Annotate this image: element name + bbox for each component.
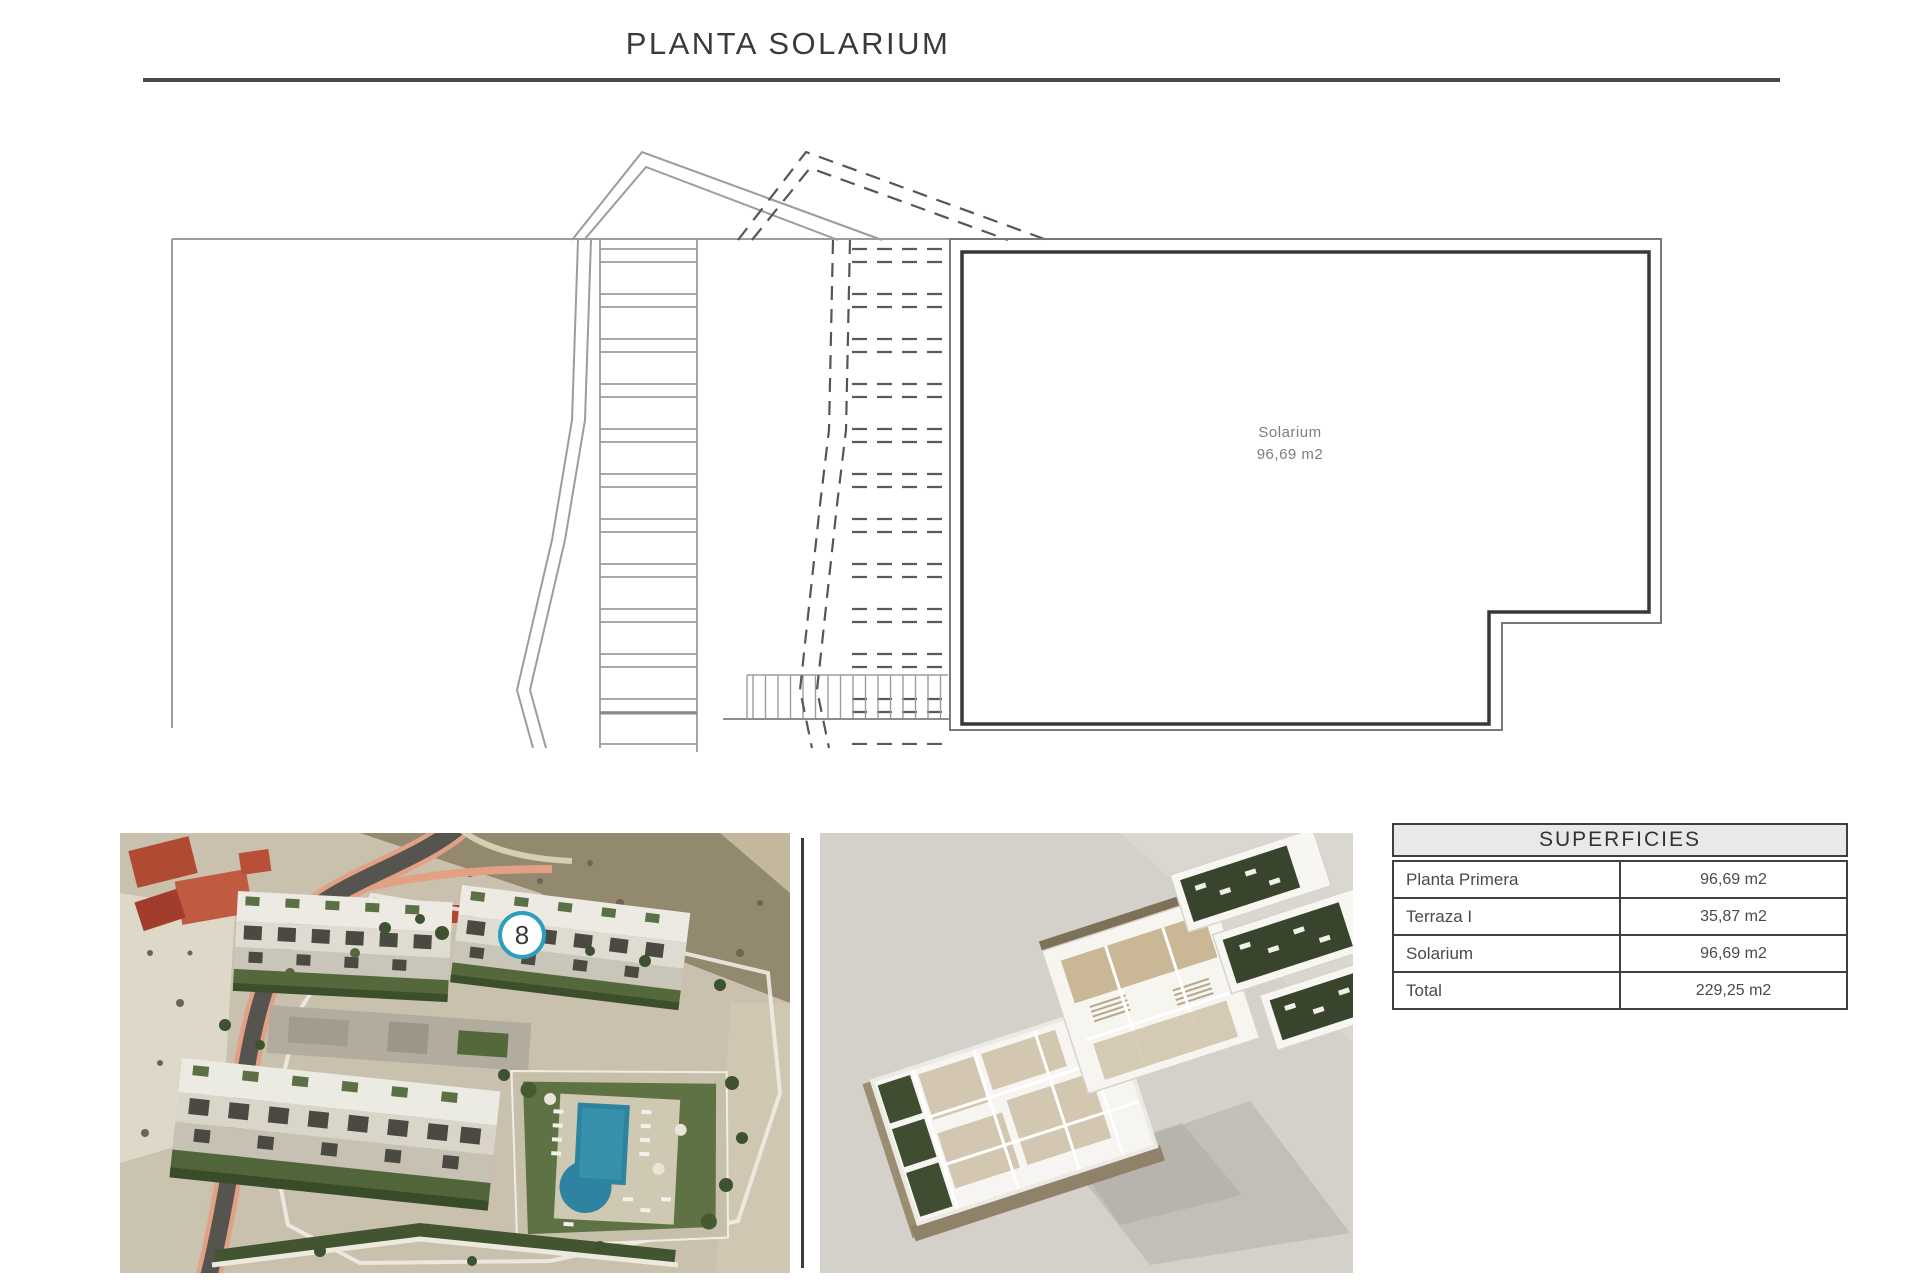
- stairs-dashed-band: [852, 240, 948, 745]
- row-value: 96,69 m2: [1621, 936, 1846, 971]
- roof-outline-dashed: [738, 152, 1047, 240]
- photo-render-divider: [801, 838, 804, 1268]
- table-row: Planta Primera 96,69 m2: [1394, 862, 1846, 899]
- table-row: Solarium 96,69 m2: [1394, 936, 1846, 973]
- unit-marker: 8: [500, 913, 544, 957]
- unit-marker-number: 8: [515, 920, 529, 950]
- row-label: Total: [1394, 973, 1621, 1008]
- row-label: Terraza I: [1394, 899, 1621, 934]
- room-name: Solarium: [1258, 424, 1321, 441]
- aerial-photo: 8: [120, 833, 790, 1273]
- surfaces-table-body: Planta Primera 96,69 m2 Terraza I 35,87 …: [1392, 860, 1848, 1010]
- stairs-solid-band: [600, 240, 697, 752]
- render-3d: [820, 833, 1353, 1273]
- surfaces-table-header: SUPERFICIES: [1392, 823, 1848, 857]
- solarium-room-label: Solarium 96,69 m2: [1257, 424, 1324, 463]
- wall-zigzag-solid: [517, 240, 591, 748]
- row-value: 96,69 m2: [1621, 862, 1846, 897]
- floor-plan-drawing: Solarium 96,69 m2: [0, 0, 1920, 810]
- table-row: Total 229,25 m2: [1394, 973, 1846, 1008]
- table-row: Terraza I 35,87 m2: [1394, 899, 1846, 936]
- solarium-outline: [950, 239, 1661, 730]
- row-label: Planta Primera: [1394, 862, 1621, 897]
- building-row-upper-left: [233, 891, 453, 1002]
- plan-sheet: PLANTA SOLARIUM: [0, 0, 1920, 1280]
- row-value: 229,25 m2: [1621, 973, 1846, 1008]
- row-label: Solarium: [1394, 936, 1621, 971]
- room-area: 96,69 m2: [1257, 446, 1324, 463]
- roof-outline-solid: [572, 152, 882, 240]
- row-value: 35,87 m2: [1621, 899, 1846, 934]
- hatch-comb: [723, 675, 950, 719]
- surfaces-table: SUPERFICIES Planta Primera 96,69 m2 Terr…: [1392, 823, 1848, 1010]
- pool-area: [502, 1061, 736, 1258]
- wall-zigzag-dashed: [800, 240, 850, 748]
